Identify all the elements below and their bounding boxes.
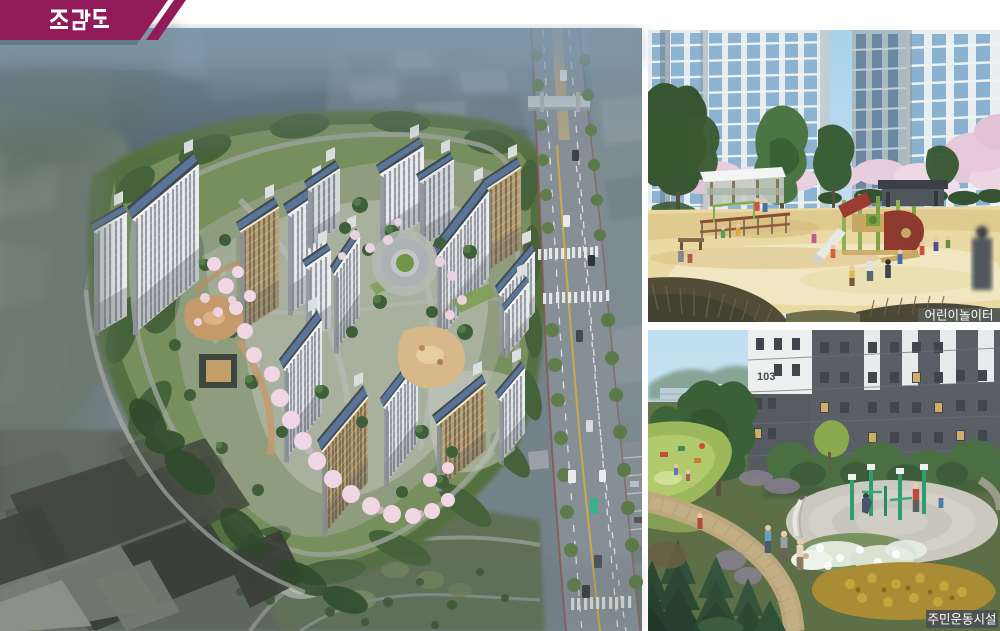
svg-text:어린이놀이터: 어린이놀이터 [924,309,993,323]
svg-text:주민운동시설: 주민운동시설 [927,613,996,627]
svg-text:103: 103 [757,371,775,383]
